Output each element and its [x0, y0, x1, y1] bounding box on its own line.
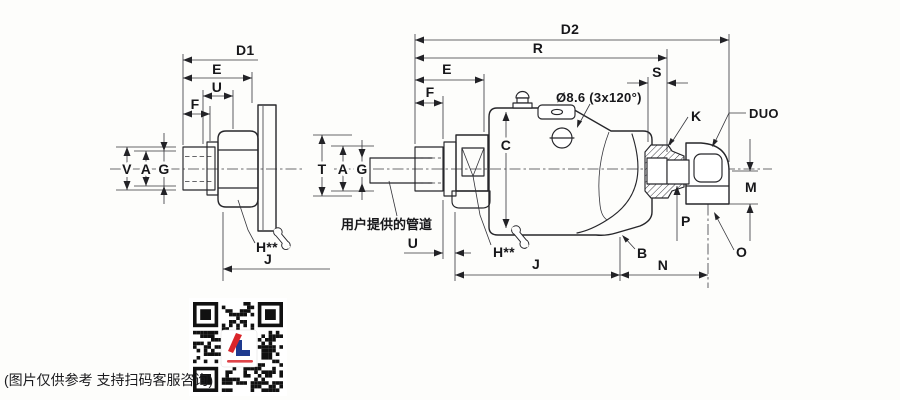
bolt-hole-circle: [550, 128, 574, 148]
qr-logo: [221, 330, 257, 367]
dim-label-v: V: [122, 161, 132, 177]
dim-label-g-mid: G: [356, 161, 367, 177]
dim-label-b: B: [637, 245, 647, 261]
flange-disc: [258, 105, 276, 231]
dim-label-a-mid: A: [338, 161, 348, 177]
left-view: H**: [116, 42, 330, 281]
dim-label-r: R: [533, 40, 543, 56]
customer-pipe: [370, 158, 441, 183]
dim-label-d2: D2: [561, 21, 580, 37]
dim-label-e-left: E: [212, 61, 222, 77]
dim-label-o: O: [736, 244, 747, 260]
washer-collar: [207, 142, 218, 195]
rotor-shaft-end: [667, 160, 689, 184]
dim-label-g-left: G: [158, 161, 169, 177]
dim-label-n: N: [658, 257, 668, 273]
dim-label-d1: D1: [236, 42, 255, 58]
dim-label-hole: Ø8.6 (3x120°): [556, 90, 642, 105]
dim-label-j-mid: J: [532, 256, 540, 272]
union-nut: [452, 135, 490, 208]
product-drawing-page: H**: [0, 0, 900, 400]
dim-label-duo: DUO: [749, 106, 779, 121]
technical-drawing: H**: [0, 0, 900, 400]
dim-label-u-left: U: [212, 79, 222, 95]
dimension-lines-left: [124, 57, 331, 273]
dim-label-f-mid: F: [426, 84, 435, 100]
dim-label-c: C: [501, 137, 511, 153]
dim-label-k: K: [691, 108, 701, 124]
dim-label-u-mid: U: [408, 235, 418, 251]
dim-label-j-left: J: [264, 251, 272, 267]
footer-disclaimer: (图片仅供参考 支持扫码客服咨询): [4, 372, 213, 388]
extension-lines-left: [116, 54, 252, 281]
pipe-thread-stub: [183, 147, 215, 190]
dim-label-f-left: F: [191, 96, 200, 112]
housing-body: [489, 108, 652, 235]
pipe-note-label: 用户提供的管道: [340, 217, 432, 232]
shaft-bore: [647, 158, 667, 184]
front-view: D2 R E F S Ø8.6 (3x120°) C T A G U H** J…: [313, 21, 779, 281]
dim-label-e-mid: E: [442, 61, 452, 77]
elbow-port: [694, 154, 722, 182]
dim-label-t: T: [318, 161, 327, 177]
dim-label-p: P: [681, 213, 691, 229]
dim-label-s: S: [652, 64, 662, 80]
top-plate: [538, 105, 575, 119]
dim-label-h-mid: H**: [493, 244, 515, 260]
dim-label-a-left: A: [141, 161, 151, 177]
dim-label-m: M: [745, 179, 757, 195]
grease-nipple-icon: [513, 92, 532, 109]
logo-caption-bar: [227, 360, 253, 363]
